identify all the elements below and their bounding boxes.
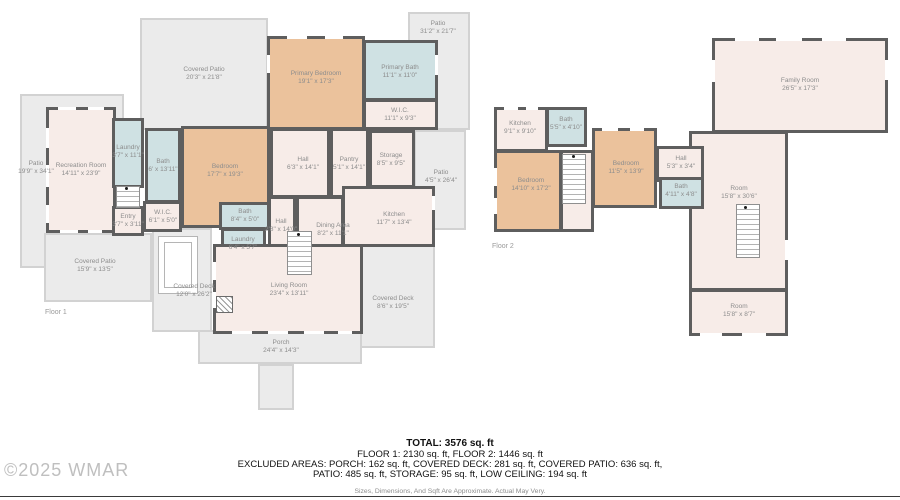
room-deck-inset-inner bbox=[164, 242, 192, 288]
room-label-covered-deck-left: Covered Deck12'0" x 26'2" bbox=[173, 283, 214, 299]
room-label-covered-deck-right: Covered Deck8'6" x 19'5" bbox=[372, 295, 413, 311]
window bbox=[700, 333, 722, 336]
room-label-dining-area: Dining Area8'2" x 11'1" bbox=[316, 222, 350, 238]
window bbox=[46, 128, 49, 148]
room-stairs-1 bbox=[116, 186, 140, 208]
area-summary: TOTAL: 3576 sq. ft FLOOR 1: 2130 sq. ft,… bbox=[0, 439, 900, 495]
room-label-patio-top-right: Patio31'2" x 21'7" bbox=[420, 20, 456, 36]
window bbox=[776, 38, 802, 41]
stair-direction-marker bbox=[572, 155, 575, 158]
room-label-f2-bath-2: Bath4'11" x 4'8" bbox=[665, 183, 697, 199]
window bbox=[338, 331, 352, 334]
window bbox=[742, 333, 766, 336]
window bbox=[88, 230, 102, 233]
window bbox=[712, 60, 715, 82]
stair-direction-marker bbox=[297, 233, 300, 236]
room-stairs-2 bbox=[287, 231, 312, 275]
room-label-primary-bedroom: Primary Bedroom19'1" x 17'3" bbox=[291, 70, 342, 86]
room-label-laundry-1: Laundry3'7" x 11'1" bbox=[112, 144, 144, 160]
room-label-bath-1: Bath6' x 13'11" bbox=[148, 158, 177, 174]
room-label-storage: Storage8'5" x 9'5" bbox=[377, 152, 405, 168]
window bbox=[435, 55, 438, 75]
window bbox=[630, 128, 644, 131]
stair-direction-marker bbox=[744, 206, 747, 209]
window bbox=[287, 36, 307, 39]
window bbox=[46, 205, 49, 223]
room-label-hall-2: Hall2'8" x 14'0" bbox=[265, 218, 297, 234]
summary-disclaimer: Sizes, Dimensions, And Sqft Are Approxim… bbox=[0, 488, 900, 495]
window bbox=[822, 38, 846, 41]
window bbox=[325, 36, 343, 39]
bottom-border-line bbox=[0, 496, 900, 497]
room-label-pantry: Pantry5'1" x 14'1" bbox=[333, 156, 365, 172]
room-label-f2-kitchen: Kitchen9'1" x 9'10" bbox=[504, 120, 536, 136]
window bbox=[735, 38, 759, 41]
room-label-covered-patio-top: Covered Patio20'3" x 21'8" bbox=[183, 66, 224, 82]
room-label-f2-family-room: Family Room26'5" x 17'3" bbox=[781, 77, 819, 93]
room-label-f2-hall: Hall5'3" x 3'4" bbox=[667, 155, 695, 171]
room-label-hall-1: Hall6'3" x 14'1" bbox=[287, 156, 319, 172]
room-label-f2-bath-1: Bath5'5" x 4'10" bbox=[550, 116, 582, 132]
window bbox=[432, 196, 435, 210]
watermark: ©2025 WMAR bbox=[4, 460, 129, 481]
window bbox=[785, 240, 788, 260]
window bbox=[504, 107, 518, 110]
room-porch-stem bbox=[258, 364, 294, 410]
room-label-kitchen: Kitchen11'7" x 13'4" bbox=[376, 211, 411, 227]
room-label-f2-room-big: Room15'8" x 30'6" bbox=[721, 185, 757, 201]
window bbox=[494, 168, 497, 186]
summary-excluded-2: PATIO: 485 sq. ft, STORAGE: 95 sq. ft, L… bbox=[0, 470, 900, 480]
room-label-primary-bath: Primary Bath11'1" x 11'0" bbox=[381, 64, 419, 80]
floorplan-canvas: Patio19'9" x 34'1"Covered Patio20'3" x 2… bbox=[0, 0, 900, 500]
floor-1-label: Floor 1 bbox=[45, 309, 67, 316]
fireplace-hatch bbox=[216, 296, 233, 313]
room-label-patio-left: Patio19'9" x 34'1" bbox=[18, 160, 54, 176]
room-label-laundry-2: Laundry6'4" x 5'7" bbox=[229, 236, 257, 252]
room-label-bath-2: Bath8'4" x 5'0" bbox=[231, 208, 259, 224]
window bbox=[60, 230, 78, 233]
room-label-wic-primary: W.I.C.11'1" x 9'3" bbox=[384, 107, 416, 123]
room-label-rec-room: Recreation Room14'11" x 23'9" bbox=[56, 162, 107, 178]
window bbox=[213, 262, 216, 280]
room-label-f2-bedroom-1: Bedroom14'10" x 17'2" bbox=[511, 177, 550, 193]
stair-direction-marker bbox=[125, 187, 128, 190]
window bbox=[268, 331, 288, 334]
window bbox=[494, 198, 497, 214]
window bbox=[526, 107, 538, 110]
window bbox=[885, 60, 888, 80]
room-label-entry: Entry3'7" x 3'11" bbox=[112, 213, 144, 229]
floor-2-label: Floor 2 bbox=[492, 243, 514, 250]
window bbox=[267, 55, 270, 73]
window bbox=[304, 331, 324, 334]
window bbox=[232, 331, 252, 334]
room-label-wic-1: W.I.C.6'1" x 5'0" bbox=[149, 209, 177, 225]
room-label-covered-patio-bl: Covered Patio15'9" x 13'5" bbox=[74, 258, 115, 274]
room-stairs-3 bbox=[562, 154, 586, 204]
room-label-bedroom-1: Bedroom17'7" x 19'3" bbox=[207, 163, 243, 179]
room-label-living-room: Living Room23'4" x 13'11" bbox=[270, 282, 309, 298]
window bbox=[602, 128, 618, 131]
room-label-patio-right-strip: Patio4'5" x 26'4" bbox=[425, 169, 457, 185]
window bbox=[58, 107, 76, 110]
room-stairs-4 bbox=[736, 204, 760, 258]
room-label-f2-bedroom-2: Bedroom11'5" x 13'9" bbox=[608, 160, 643, 176]
window bbox=[88, 107, 104, 110]
room-label-f2-room-small: Room15'8" x 8'7" bbox=[723, 303, 755, 319]
room-label-porch: Porch24'4" x 14'3" bbox=[263, 339, 299, 355]
